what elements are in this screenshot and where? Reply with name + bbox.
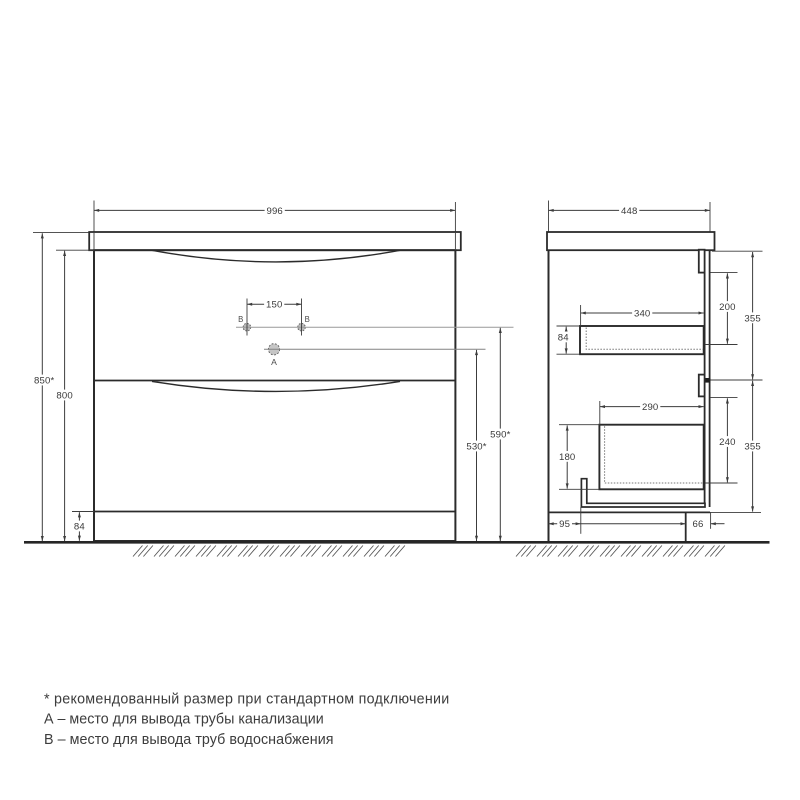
svg-text:180: 180 bbox=[559, 452, 575, 463]
svg-text:84: 84 bbox=[558, 332, 569, 343]
svg-text:66: 66 bbox=[693, 519, 704, 530]
svg-text:В – место для вывода труб водо: В – место для вывода труб водоснабжения bbox=[44, 732, 334, 748]
svg-text:530*: 530* bbox=[466, 442, 486, 453]
svg-text:B: B bbox=[305, 315, 310, 324]
svg-text:996: 996 bbox=[266, 206, 282, 217]
svg-text:84: 84 bbox=[74, 522, 85, 533]
svg-text:А – место для вывода трубы кан: А – место для вывода трубы канализации bbox=[44, 712, 324, 728]
svg-text:355: 355 bbox=[744, 313, 760, 324]
svg-text:150: 150 bbox=[266, 300, 282, 311]
svg-text:240: 240 bbox=[719, 437, 735, 448]
svg-text:95: 95 bbox=[559, 519, 570, 530]
svg-text:B: B bbox=[238, 315, 243, 324]
svg-text:A: A bbox=[271, 357, 277, 367]
svg-text:448: 448 bbox=[621, 206, 637, 217]
svg-text:850*: 850* bbox=[34, 376, 54, 387]
svg-text:355: 355 bbox=[744, 442, 760, 453]
svg-text:800: 800 bbox=[56, 391, 72, 402]
svg-text:200: 200 bbox=[719, 302, 735, 313]
svg-text:* рекомендованный размер при с: * рекомендованный размер при стандартном… bbox=[44, 691, 450, 707]
svg-text:590*: 590* bbox=[490, 430, 510, 441]
svg-text:340: 340 bbox=[634, 309, 650, 320]
svg-text:290: 290 bbox=[642, 402, 658, 413]
